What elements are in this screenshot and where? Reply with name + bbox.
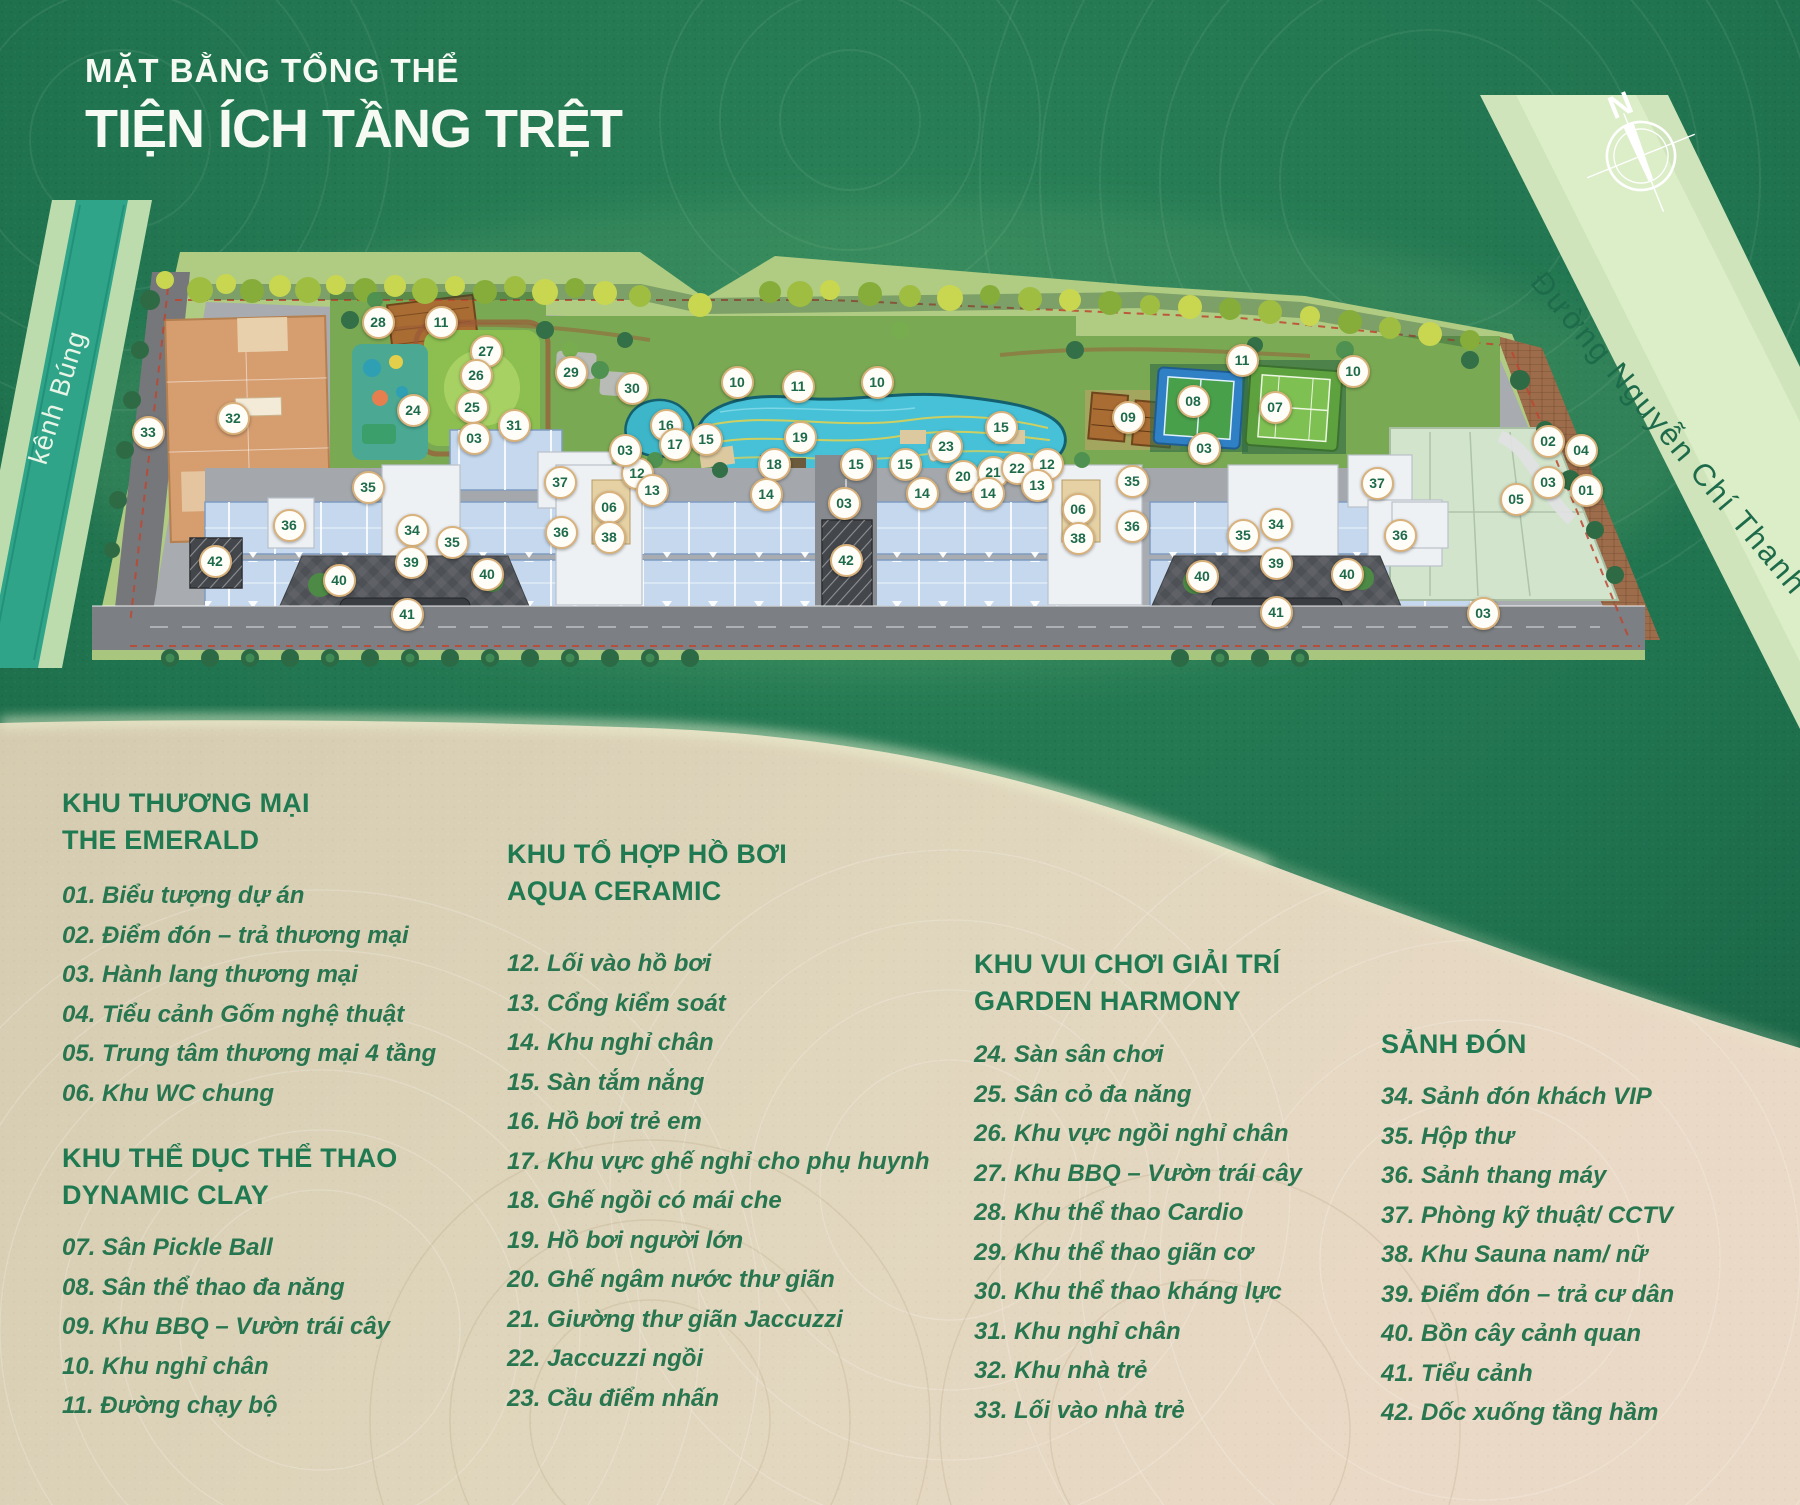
- legend-item: 28. Khu thể thao Cardio: [974, 1193, 1302, 1233]
- legend-item: 06. Khu WC chung: [62, 1074, 436, 1114]
- legend-section-pool: KHU TỔ HỢP HỒ BƠIAQUA CERAMIC 12. Lối và…: [507, 836, 929, 1418]
- legend-item: 05. Trung tâm thương mại 4 tầng: [62, 1034, 436, 1074]
- legend-item: 14. Khu nghỉ chân: [507, 1023, 929, 1063]
- legend-item: 18. Ghế ngồi có mái che: [507, 1181, 929, 1221]
- legend-item: 25. Sân cỏ đa năng: [974, 1075, 1302, 1115]
- legend-section-lobby: SẢNH ĐÓN 34. Sảnh đón khách VIP35. Hộp t…: [1381, 1026, 1674, 1433]
- legend-heading: SẢNH ĐÓN: [1381, 1026, 1674, 1063]
- legend-item: 01. Biểu tượng dự án: [62, 876, 436, 916]
- legend-item: 23. Cầu điểm nhấn: [507, 1379, 929, 1419]
- legend-section-sports: KHU THỂ DỤC THỂ THAODYNAMIC CLAY 07. Sân…: [62, 1140, 398, 1426]
- legend-heading: KHU TỔ HỢP HỒ BƠIAQUA CERAMIC: [507, 836, 929, 910]
- legend-item: 20. Ghế ngâm nước thư giãn: [507, 1260, 929, 1300]
- legend-item: 16. Hồ bơi trẻ em: [507, 1102, 929, 1142]
- legend-item: 42. Dốc xuống tầng hầm: [1381, 1393, 1674, 1433]
- legend-item: 19. Hồ bơi người lớn: [507, 1221, 929, 1261]
- tennis-court: [1245, 365, 1342, 451]
- multisport-court: [1153, 367, 1244, 449]
- site-plan-poster: kênh Búng Đường Nguyễn Chí Thanh N MẶT B…: [0, 0, 1800, 1505]
- legend-section-commercial: KHU THƯƠNG MẠITHE EMERALD 01. Biểu tượng…: [62, 785, 436, 1113]
- legend-item: 02. Điểm đón – trả thương mại: [62, 916, 436, 956]
- legend-item: 09. Khu BBQ – Vườn trái cây: [62, 1307, 398, 1347]
- legend-item: 12. Lối vào hồ bơi: [507, 944, 929, 984]
- legend-item: 21. Giường thư giãn Jaccuzzi: [507, 1300, 929, 1340]
- legend-item: 03. Hành lang thương mại: [62, 955, 436, 995]
- page-title: TIỆN ÍCH TẦNG TRỆT: [85, 98, 622, 160]
- legend-item: 36. Sảnh thang máy: [1381, 1156, 1674, 1196]
- legend-item: 39. Điểm đón – trả cư dân: [1381, 1275, 1674, 1315]
- legend-heading: KHU THỂ DỤC THỂ THAODYNAMIC CLAY: [62, 1140, 398, 1214]
- legend-heading: KHU THƯƠNG MẠITHE EMERALD: [62, 785, 436, 859]
- legend-item: 26. Khu vực ngồi nghỉ chân: [974, 1114, 1302, 1154]
- legend-item: 34. Sảnh đón khách VIP: [1381, 1077, 1674, 1117]
- legend-item: 35. Hộp thư: [1381, 1117, 1674, 1157]
- legend-item: 30. Khu thể thao kháng lực: [974, 1272, 1302, 1312]
- legend-item: 10. Khu nghỉ chân: [62, 1347, 398, 1387]
- legend-item: 32. Khu nhà trẻ: [974, 1351, 1302, 1391]
- legend-item: 15. Sàn tắm nắng: [507, 1063, 929, 1103]
- legend-list: 01. Biểu tượng dự án02. Điểm đón – trả t…: [62, 876, 436, 1113]
- legend-section-playground: KHU VUI CHƠI GIẢI TRÍGARDEN HARMONY 24. …: [974, 946, 1302, 1430]
- legend-item: 22. Jaccuzzi ngồi: [507, 1339, 929, 1379]
- legend-heading: KHU VUI CHƠI GIẢI TRÍGARDEN HARMONY: [974, 946, 1302, 1020]
- legend-item: 40. Bồn cây cảnh quan: [1381, 1314, 1674, 1354]
- page-subtitle: MẶT BẰNG TỔNG THỂ: [85, 52, 622, 90]
- legend-list: 12. Lối vào hồ bơi13. Cổng kiểm soát14. …: [507, 944, 929, 1418]
- legend-item: 17. Khu vực ghế nghỉ cho phụ huynh: [507, 1142, 929, 1182]
- legend-item: 27. Khu BBQ – Vườn trái cây: [974, 1154, 1302, 1194]
- legend-item: 11. Đường chạy bộ: [62, 1386, 398, 1426]
- legend-item: 29. Khu thể thao giãn cơ: [974, 1233, 1302, 1273]
- legend-item: 08. Sân thể thao đa năng: [62, 1268, 398, 1308]
- legend-item: 24. Sàn sân chơi: [974, 1035, 1302, 1075]
- legend-list: 07. Sân Pickle Ball08. Sân thể thao đa n…: [62, 1228, 398, 1426]
- legend-item: 04. Tiểu cảnh Gốm nghệ thuật: [62, 995, 436, 1035]
- legend-list: 24. Sàn sân chơi25. Sân cỏ đa năng26. Kh…: [974, 1035, 1302, 1430]
- title-block: MẶT BẰNG TỔNG THỂ TIỆN ÍCH TẦNG TRỆT: [85, 52, 622, 160]
- legend-item: 33. Lối vào nhà trẻ: [974, 1391, 1302, 1431]
- legend-item: 38. Khu Sauna nam/ nữ: [1381, 1235, 1674, 1275]
- legend-list: 34. Sảnh đón khách VIP35. Hộp thư36. Sản…: [1381, 1077, 1674, 1433]
- legend-item: 41. Tiểu cảnh: [1381, 1354, 1674, 1394]
- legend-item: 31. Khu nghỉ chân: [974, 1312, 1302, 1352]
- legend-item: 37. Phòng kỹ thuật/ CCTV: [1381, 1196, 1674, 1236]
- legend-item: 07. Sân Pickle Ball: [62, 1228, 398, 1268]
- legend-item: 13. Cổng kiểm soát: [507, 984, 929, 1024]
